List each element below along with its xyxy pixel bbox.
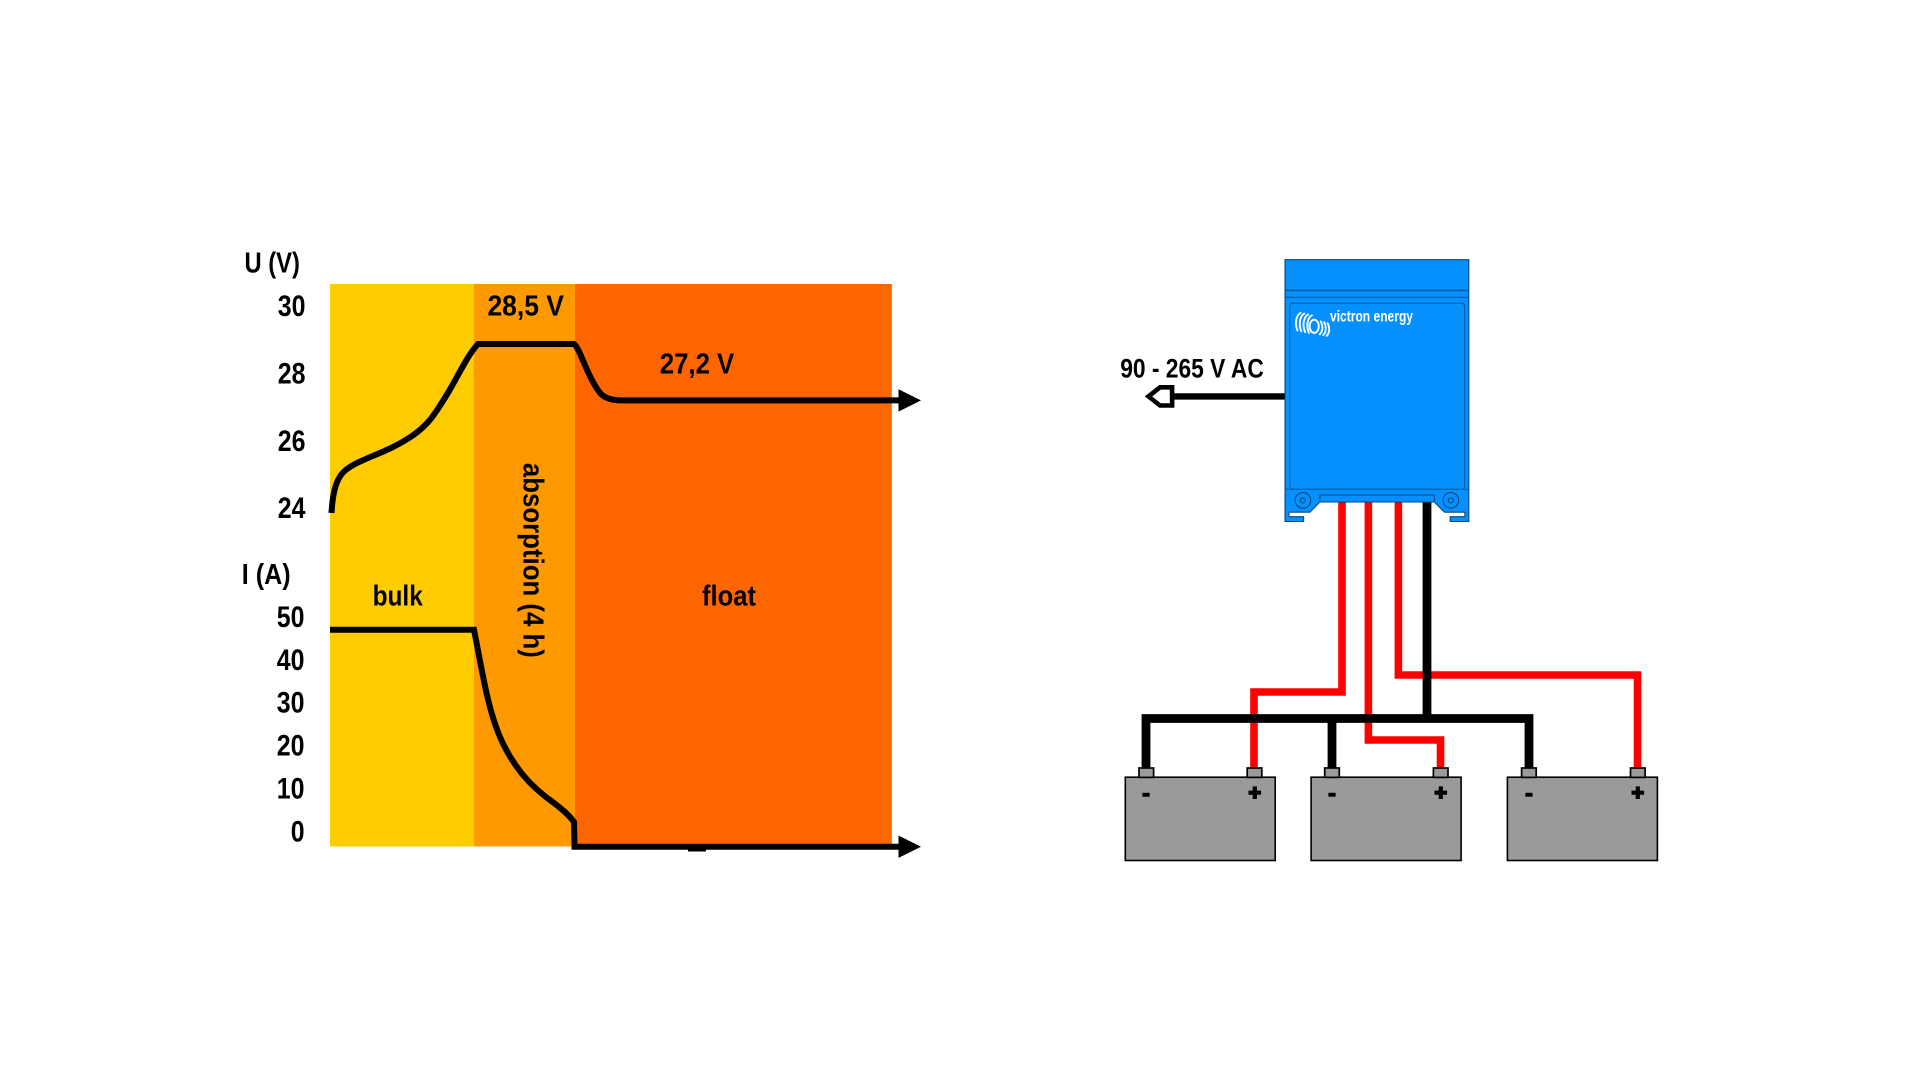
svg-text:28: 28 [278, 358, 306, 391]
svg-text:24: 24 [278, 492, 306, 525]
svg-text:20: 20 [277, 730, 305, 763]
svg-text:28,5 V: 28,5 V [487, 291, 564, 323]
svg-text:float: float [702, 580, 756, 612]
svg-text:absorption (4 h): absorption (4 h) [517, 463, 549, 658]
svg-text:victron energy: victron energy [1330, 309, 1413, 326]
svg-text:40: 40 [277, 644, 305, 677]
svg-text:27,2 V: 27,2 V [660, 349, 735, 381]
svg-text:50: 50 [277, 601, 305, 634]
svg-text:90 - 265 V AC: 90 - 265 V AC [1120, 353, 1264, 383]
svg-text:26: 26 [278, 425, 306, 458]
svg-text:U (V): U (V) [245, 248, 300, 280]
svg-text:30: 30 [278, 290, 306, 323]
svg-text:I (A): I (A) [242, 559, 291, 591]
svg-text:10: 10 [277, 773, 305, 806]
svg-text:30: 30 [277, 687, 305, 720]
svg-text:0: 0 [291, 815, 305, 848]
svg-text:bulk: bulk [373, 580, 424, 612]
